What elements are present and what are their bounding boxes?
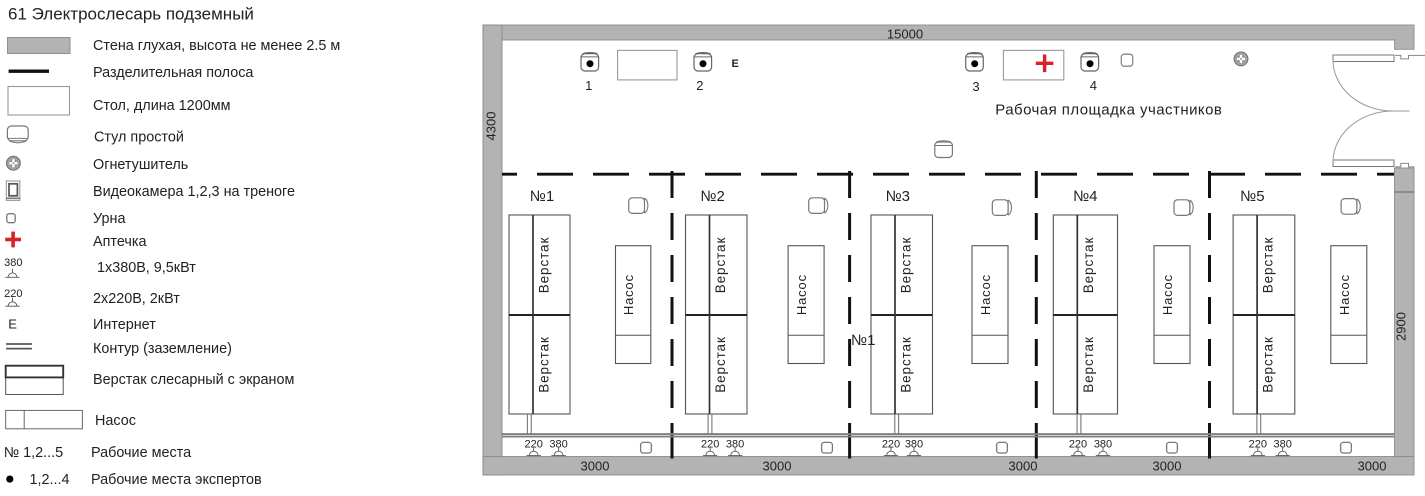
- svg-text:1,2...4: 1,2...4: [30, 472, 70, 488]
- svg-text:№5: №5: [1240, 188, 1264, 205]
- svg-text:№ 1,2...5: № 1,2...5: [4, 445, 63, 461]
- svg-text:4300: 4300: [484, 112, 499, 141]
- svg-text:Контур (заземление): Контур (заземление): [93, 341, 232, 357]
- svg-text:Верстак: Верстак: [899, 336, 914, 393]
- svg-text:№1: №1: [851, 332, 875, 349]
- svg-text:№2: №2: [700, 188, 724, 205]
- svg-text:Насос: Насос: [794, 274, 809, 315]
- svg-text:Стол, длина 1200мм: Стол, длина 1200мм: [93, 98, 230, 114]
- svg-text:Насос: Насос: [621, 274, 636, 315]
- svg-text:Верстак: Верстак: [713, 336, 728, 393]
- svg-text:2: 2: [696, 78, 703, 93]
- svg-text:Верстак: Верстак: [537, 237, 552, 294]
- svg-text:Аптечка: Аптечка: [93, 234, 146, 250]
- svg-text:Верстак: Верстак: [1261, 237, 1276, 294]
- svg-text:Интернет: Интернет: [93, 317, 156, 333]
- svg-text:E: E: [732, 58, 739, 70]
- svg-text:Насос: Насос: [1160, 274, 1175, 315]
- svg-text:Верстак: Верстак: [713, 237, 728, 294]
- svg-text:Верстак: Верстак: [1081, 336, 1096, 393]
- svg-text:Разделительная полоса: Разделительная полоса: [93, 65, 253, 81]
- svg-text:Верстак: Верстак: [537, 336, 552, 393]
- svg-text:3000: 3000: [1358, 459, 1387, 474]
- svg-text:Урна: Урна: [93, 211, 125, 227]
- svg-text:3000: 3000: [581, 459, 610, 474]
- svg-text:Е: Е: [8, 317, 17, 332]
- svg-text:3000: 3000: [1009, 459, 1038, 474]
- svg-text:Насос: Насос: [95, 413, 136, 429]
- svg-text:Рабочие места экспертов: Рабочие места экспертов: [91, 472, 262, 488]
- svg-text:Насос: Насос: [978, 274, 993, 315]
- svg-text:4: 4: [1090, 78, 1097, 93]
- svg-text:№4: №4: [1073, 188, 1097, 205]
- svg-text:15000: 15000: [887, 27, 923, 42]
- svg-text:Верстак: Верстак: [1081, 237, 1096, 294]
- svg-text:Стена глухая, высота не менее: Стена глухая, высота не менее 2.5 м: [93, 38, 340, 54]
- svg-text:61 Электрослесарь подземный: 61 Электрослесарь подземный: [8, 5, 254, 24]
- svg-text:Рабочая площадка участников: Рабочая площадка участников: [995, 102, 1222, 119]
- svg-text:3000: 3000: [1153, 459, 1182, 474]
- svg-text:1: 1: [585, 78, 592, 93]
- svg-text:3: 3: [972, 79, 979, 94]
- svg-text:380: 380: [4, 257, 22, 269]
- svg-text:Огнетушитель: Огнетушитель: [93, 157, 188, 173]
- svg-text:3000: 3000: [763, 459, 792, 474]
- svg-text:Верстак: Верстак: [899, 237, 914, 294]
- svg-text:1х380В, 9,5кВт: 1х380В, 9,5кВт: [97, 260, 196, 276]
- svg-text:Рабочие места: Рабочие места: [91, 445, 191, 461]
- svg-text:Верстак: Верстак: [1261, 336, 1276, 393]
- svg-text:№3: №3: [886, 188, 910, 205]
- svg-text:2х220В, 2кВт: 2х220В, 2кВт: [93, 291, 180, 307]
- svg-text:2900: 2900: [1394, 312, 1409, 341]
- svg-text:Стул простой: Стул простой: [94, 130, 184, 146]
- svg-text:№1: №1: [530, 188, 554, 205]
- svg-text:Видеокамера 1,2,3 на треноге: Видеокамера 1,2,3 на треноге: [93, 184, 295, 200]
- svg-text:Насос: Насос: [1337, 274, 1352, 315]
- svg-text:Верстак слесарный с экраном: Верстак слесарный с экраном: [93, 372, 294, 388]
- svg-text:220: 220: [4, 288, 22, 300]
